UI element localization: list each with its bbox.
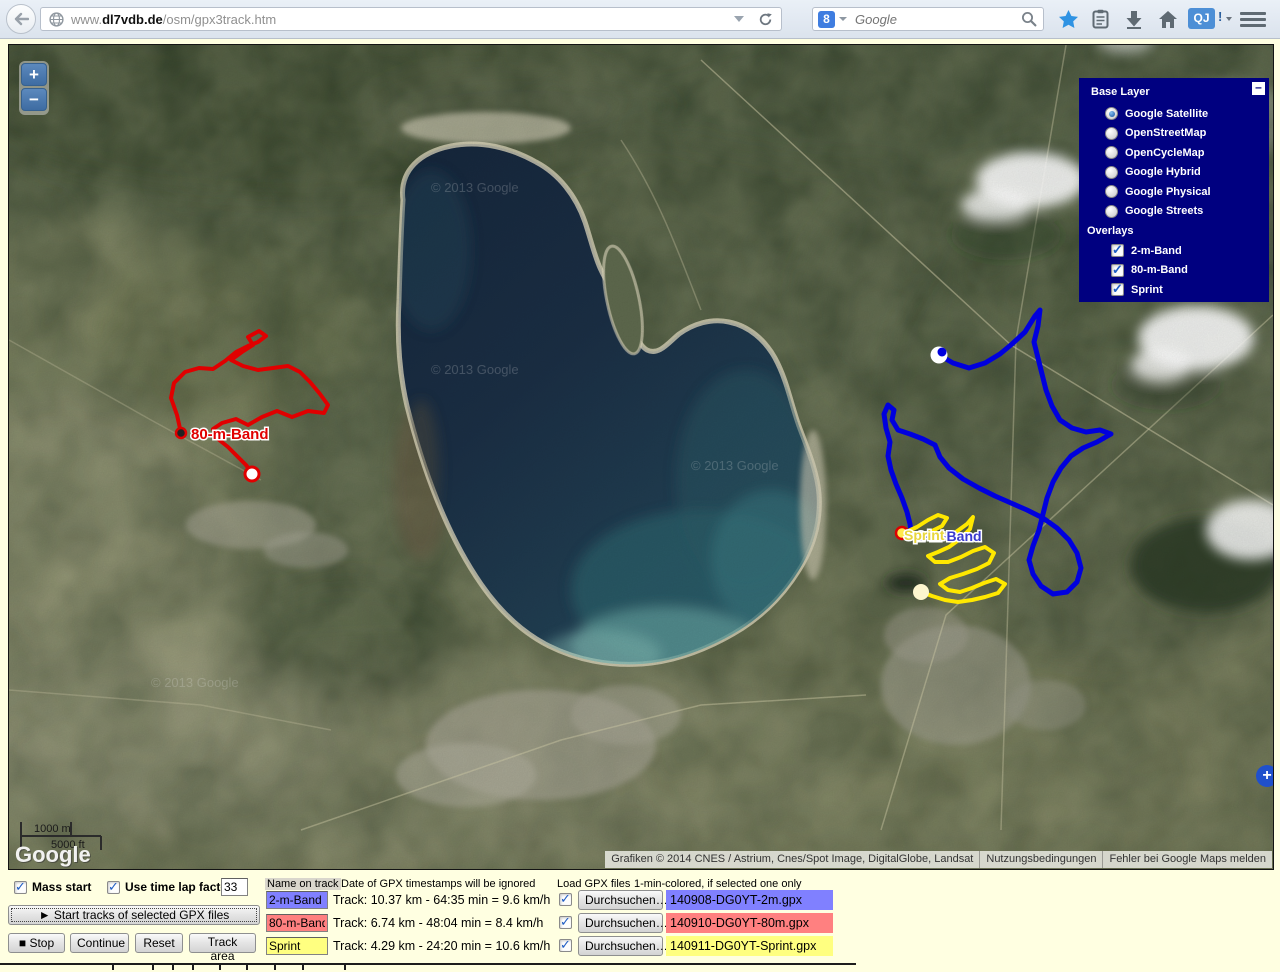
track-label-80m: 80-m-Band	[191, 426, 269, 443]
checkbox-icon[interactable]	[1111, 244, 1124, 257]
marker-80m-start	[176, 428, 186, 438]
back-arrow-icon	[13, 12, 29, 26]
load-gpx-header: Load GPX files	[557, 878, 630, 890]
base-layer-google-satellite[interactable]: Google Satellite	[1087, 104, 1263, 124]
google-logo[interactable]: Google Google	[15, 842, 92, 868]
map-viewport[interactable]: © 2013 Google © 2013 Google © 2013 Googl…	[8, 44, 1274, 870]
reload-icon[interactable]	[758, 12, 773, 27]
google-search-engine-icon[interactable]: 8	[818, 11, 835, 28]
zoom-in-button[interactable]: +	[21, 63, 47, 86]
gpx-file-checkbox-80m[interactable]	[559, 916, 572, 929]
download-arrow-icon	[1125, 10, 1143, 29]
cutoff-table-edge	[0, 963, 856, 972]
page-background: © 2013 Google © 2013 Google © 2013 Googl…	[0, 39, 1280, 970]
track-stats-sprint: Track: 4.29 km - 24:20 min = 10.6 km/h	[333, 939, 550, 953]
minimize-layer-switcher-button[interactable]	[1252, 82, 1265, 95]
attribution-text: Grafiken © 2014 CNES / Astrium, Cnes/Spo…	[605, 851, 979, 868]
radio-icon[interactable]	[1105, 185, 1118, 198]
url-text[interactable]: www.dl7vdb.de/osm/gpx3track.htm	[71, 12, 276, 27]
search-engine-dropdown-icon[interactable]	[839, 17, 847, 21]
downloads-button[interactable]	[1122, 8, 1146, 30]
base-layer-opencyclemap[interactable]: OpenCycleMap	[1087, 143, 1263, 163]
browser-toolbar: www.dl7vdb.de/osm/gpx3track.htm 8	[0, 0, 1280, 39]
map-attribution: Grafiken © 2014 CNES / Astrium, Cnes/Spo…	[605, 851, 1272, 868]
bookmarks-menu-button[interactable]	[1088, 8, 1112, 30]
gpx-filename-2m: 140908-DG0YT-2m.gpx	[666, 890, 833, 910]
svg-text:Google: Google	[15, 842, 91, 867]
home-icon	[1158, 10, 1178, 29]
track-stats-80m: Track: 6.74 km - 48:04 min = 8.4 km/h	[333, 916, 543, 930]
stop-button[interactable]: ■ Stop	[8, 933, 65, 953]
report-error-link[interactable]: Fehler bei Google Maps melden	[1102, 851, 1272, 868]
radio-icon[interactable]	[1105, 166, 1118, 179]
terms-link[interactable]: Nutzungsbedingungen	[979, 851, 1102, 868]
mass-start-checkbox[interactable]	[14, 881, 27, 894]
base-layer-google-physical[interactable]: Google Physical	[1087, 182, 1263, 202]
base-layer-google-hybrid[interactable]: Google Hybrid	[1087, 163, 1263, 183]
gpx-filename-sprint: 140911-DG0YT-Sprint.gpx	[666, 936, 833, 956]
marker-sprint-end	[913, 584, 929, 600]
menu-button[interactable]	[1240, 9, 1266, 29]
base-layer-openstreetmap[interactable]: OpenStreetMap	[1087, 124, 1263, 144]
radio-icon[interactable]	[1105, 146, 1118, 159]
home-button[interactable]	[1156, 8, 1180, 30]
globe-icon	[49, 12, 64, 27]
gpx-file-checkbox-sprint[interactable]	[559, 939, 572, 952]
clipboard-icon	[1092, 9, 1109, 29]
browse-button-sprint[interactable]: Durchsuchen…	[578, 936, 663, 956]
track-stats-2m: Track: 10.37 km - 64:35 min = 9.6 km/h	[333, 893, 550, 907]
gpx-filename-80m: 140910-DG0YT-80m.gpx	[666, 913, 833, 933]
track-name-input-80m[interactable]	[266, 914, 328, 932]
reset-button[interactable]: Reset	[135, 933, 183, 953]
hamburger-icon	[1240, 12, 1266, 15]
layer-switcher: Base Layer Google Satellite OpenStreetMa…	[1079, 78, 1269, 302]
base-layer-google-streets[interactable]: Google Streets	[1087, 202, 1263, 222]
scale-meters: 1000 m	[34, 823, 71, 835]
track-area-button[interactable]: Track area	[189, 933, 256, 953]
back-button[interactable]	[6, 4, 36, 34]
search-input[interactable]	[853, 11, 1021, 28]
date-note: Date of GPX timestamps will be ignored	[341, 878, 535, 890]
overlay-sprint[interactable]: Sprint	[1087, 280, 1263, 300]
browse-button-2m[interactable]: Durchsuchen…	[578, 890, 663, 910]
browse-button-80m[interactable]: Durchsuchen…	[578, 913, 663, 933]
radio-icon[interactable]	[1105, 127, 1118, 140]
track-name-input-sprint[interactable]	[266, 937, 328, 955]
search-bar[interactable]: 8	[812, 7, 1044, 31]
overlay-2m-band[interactable]: 2-m-Band	[1087, 241, 1263, 261]
start-tracks-button[interactable]: ► Start tracks of selected GPX files	[8, 905, 260, 925]
star-icon	[1058, 9, 1079, 29]
track-name-input-2m[interactable]	[266, 891, 328, 909]
checkbox-icon[interactable]	[1111, 283, 1124, 296]
checkbox-icon[interactable]	[1111, 264, 1124, 277]
overlay-80m-band[interactable]: 80-m-Band	[1087, 261, 1263, 281]
load-note: 1-min-colored, if selected one only	[634, 878, 802, 890]
track-label-sprint: Sprint	[904, 527, 945, 543]
url-dropdown-icon[interactable]	[734, 16, 744, 22]
continue-button[interactable]: Continue	[70, 933, 129, 953]
addon-button[interactable]: QJ	[1188, 8, 1215, 29]
time-lap-label: Use time lap factor	[125, 880, 232, 894]
radio-icon[interactable]	[1105, 107, 1118, 120]
radio-icon[interactable]	[1105, 205, 1118, 218]
marker-2m-end-dot	[938, 348, 947, 357]
bookmark-star-button[interactable]	[1056, 8, 1080, 30]
expand-panel-button[interactable]: +	[1256, 765, 1274, 787]
name-on-track-header: Name on track	[265, 878, 341, 890]
gpx-file-checkbox-2m[interactable]	[559, 893, 572, 906]
overlays-title: Overlays	[1087, 225, 1263, 237]
time-lap-checkbox[interactable]	[107, 881, 120, 894]
time-lap-input[interactable]	[221, 878, 248, 896]
marker-80m-end	[245, 467, 259, 481]
base-layer-title: Base Layer	[1091, 86, 1263, 98]
url-bar[interactable]: www.dl7vdb.de/osm/gpx3track.htm	[40, 7, 782, 31]
mass-start-label: Mass start	[32, 880, 91, 894]
search-icon[interactable]	[1021, 11, 1037, 27]
zoom-control: + −	[19, 61, 49, 115]
addon-badge-text: !	[1218, 9, 1222, 24]
addon-dropdown-icon[interactable]	[1226, 17, 1232, 21]
zoom-out-button[interactable]: −	[21, 88, 47, 111]
